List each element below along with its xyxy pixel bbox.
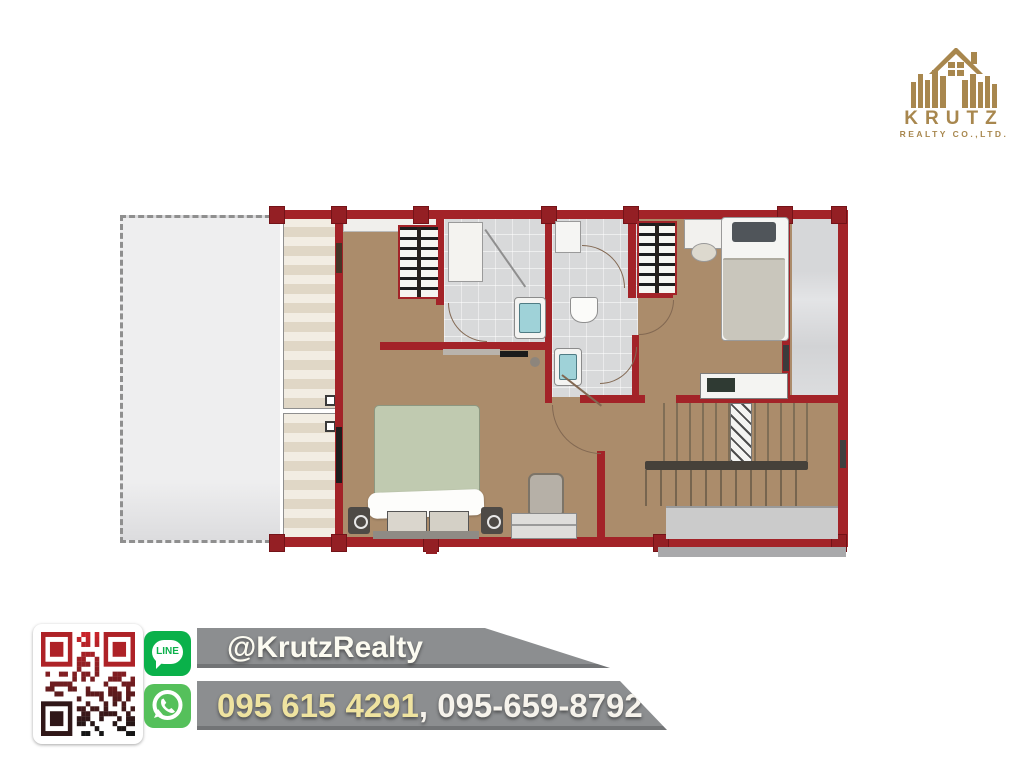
balcony-door-glass-2 — [783, 345, 789, 371]
master-double-bed — [371, 403, 481, 537]
line-speech-bubble: LINE — [152, 640, 183, 664]
window-left-lower — [336, 427, 342, 483]
nightstand — [481, 507, 503, 534]
bath1-vanity — [448, 222, 483, 282]
logo-title: KRUTZ — [893, 108, 1015, 130]
bedroom2-single-bed — [721, 217, 789, 341]
qr-code — [41, 632, 135, 736]
wall-stair-divider — [597, 451, 605, 537]
bed-blanket — [723, 258, 785, 340]
wall-bath2-right-upper — [628, 210, 636, 298]
bath2-cabinet — [555, 221, 581, 253]
bedroom2-wardrobe-hangers — [637, 221, 677, 295]
line-banner: @KrutzRealty — [197, 628, 610, 668]
wall-shelf — [443, 349, 500, 355]
phone-secondary: , 095-659-8792 — [419, 687, 643, 724]
pillar — [542, 207, 556, 223]
window-left-upper — [336, 243, 342, 273]
bedroom2-shelf — [700, 373, 788, 399]
line-icon-label: LINE — [152, 640, 183, 664]
phone-banner: 095 615 4291, 095-659-8792 — [197, 681, 667, 730]
bedroom2-chair — [691, 243, 717, 262]
line-icon: LINE — [144, 631, 191, 676]
bedroom-chair — [528, 473, 564, 515]
pillar — [414, 207, 428, 223]
window-right — [840, 440, 846, 468]
pillar-footing — [426, 548, 437, 554]
krutz-logo: KRUTZ REALTY CO.,LTD. — [893, 30, 1015, 142]
phone-primary: 095 615 4291 — [217, 687, 419, 724]
whatsapp-glyph — [144, 684, 191, 728]
drawer-line — [512, 524, 576, 526]
dresser-desk — [511, 513, 577, 539]
pillar — [270, 207, 284, 223]
floor-plan — [118, 205, 853, 570]
roof-tile-strip-lower — [283, 413, 339, 541]
bath1-sink — [514, 297, 546, 339]
pillar — [624, 207, 638, 223]
roof-tile-strip-upper — [283, 217, 339, 409]
bed-pillow — [732, 222, 776, 242]
stair-balusters — [645, 470, 808, 506]
stair-landing — [666, 506, 838, 539]
tv — [500, 351, 528, 357]
lower-roof-edge — [658, 547, 846, 557]
wall-bath-divider — [545, 210, 552, 403]
pillar — [832, 207, 846, 223]
stair-handrail — [645, 461, 808, 470]
speaker — [354, 515, 368, 529]
ceiling-fan — [530, 357, 540, 367]
stair-break-line — [730, 403, 752, 463]
logo-subtitle: REALTY CO.,LTD. — [893, 129, 1015, 139]
whatsapp-icon — [144, 684, 191, 728]
pillar — [332, 535, 346, 551]
qr-code-card — [33, 624, 143, 744]
wall-right — [838, 210, 848, 547]
wall-bath2-right-lower — [632, 335, 639, 397]
nightstand — [348, 507, 370, 534]
pillar — [270, 535, 284, 551]
bed-headboard — [373, 531, 479, 539]
line-handle: @KrutzRealty — [197, 628, 610, 668]
shelf-item — [707, 378, 735, 392]
terrace-roof-area — [120, 215, 280, 543]
bath2-toilet — [570, 297, 598, 323]
balcony-floor — [792, 215, 838, 403]
speaker — [487, 515, 501, 529]
pillar — [332, 207, 346, 223]
hall-closet-hangers — [398, 225, 440, 299]
